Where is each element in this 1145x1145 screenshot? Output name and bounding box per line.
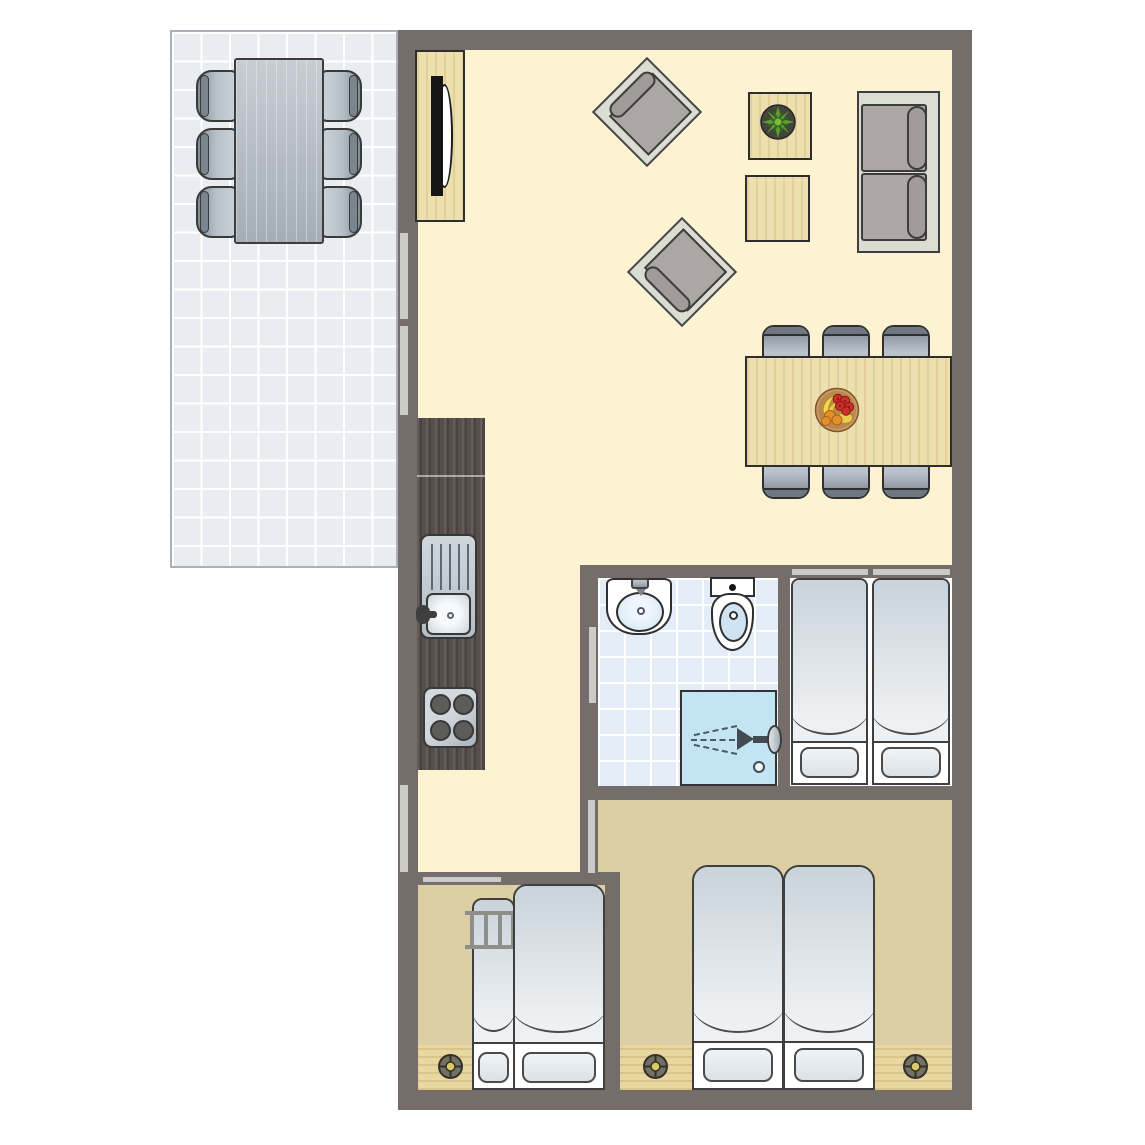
pillow [478,1052,509,1083]
single-bed [791,578,868,785]
toilet-drain [729,611,738,620]
sofa-back-pillow [907,175,927,239]
bunk-bed-lower [472,898,515,1090]
duvet-fold-line [872,709,950,735]
ladder-rung [498,911,502,949]
counter-seam [417,475,485,477]
duvet [474,900,513,1044]
terrace-window [400,326,408,415]
burner-icon [430,720,451,741]
tv [431,76,443,196]
single-bed [783,865,875,1090]
chair-backrest [884,488,928,497]
washbasin-drain [637,607,645,615]
ceiling-vent-icon [437,1053,464,1080]
floor-plan [0,0,1145,1145]
duvet-fold-line [472,1006,515,1032]
chair-backrest [200,191,209,233]
chair-backrest [824,488,868,497]
terrace-dining-table [234,58,324,244]
shower-drain [753,761,765,773]
shower-spray [694,744,737,755]
duvet-fold-line [692,1003,784,1033]
shower [680,690,777,786]
terrace-chair [320,70,362,122]
burner-icon [453,720,474,741]
chair-backrest [764,488,808,497]
pillow [703,1048,773,1082]
ladder-rung [484,911,488,949]
burner-icon [453,694,474,715]
washbasin-faucet-icon [631,578,649,589]
chair-backrest [349,191,358,233]
stove [423,687,478,748]
drainboard-groove [467,544,469,590]
pillow [800,747,859,778]
single-bed [692,865,784,1090]
sofa [857,91,940,253]
kitchen-sink [420,534,477,639]
chair-backrest [824,327,868,336]
headboard [792,569,868,575]
shower-spray [694,725,737,736]
duvet [793,580,866,743]
drainboard-groove [449,544,451,590]
chair-backrest [200,133,209,175]
pillow [794,1048,864,1082]
duvet-fold-line [513,1007,605,1033]
pillow [522,1052,596,1083]
ladder-rung [470,911,474,949]
terrace-chair [320,128,362,180]
bunk-bed-upper [513,884,605,1090]
duvet-fold-line [791,709,868,735]
terrace-chair [196,186,238,238]
duvet-fold-line [783,1003,875,1033]
drainboard-groove [431,544,433,590]
sofa-back-pillow [907,106,927,170]
double-bedroom-door [588,800,595,873]
side-table [745,175,810,242]
fruit-bowl-icon [814,387,860,433]
duvet [694,867,782,1043]
chair-backrest [884,327,928,336]
wall-right [952,30,972,1110]
ceiling-vent-icon [642,1053,669,1080]
single-bed [872,578,950,785]
burner-icon [430,694,451,715]
wall-bathroom-bedroom-divider [778,565,790,800]
washbasin-bowl [616,592,664,632]
chair-backrest [764,327,808,336]
drainboard-groove [440,544,442,590]
shower-head-icon [767,725,782,754]
ceiling-vent-icon [902,1053,929,1080]
faucet-spout [426,611,437,618]
duvet [874,580,948,743]
washbasin [606,578,672,635]
chair-backrest [349,75,358,117]
toilet-bowl [719,602,748,642]
drainboard-groove [458,544,460,590]
chair-backrest [200,75,209,117]
terrace-chair [196,70,238,122]
headboard [873,569,950,575]
wall-bathroom-bottom [580,786,952,800]
chair-backrest [349,133,358,175]
washbasin-spout [636,589,646,596]
wall-top [398,30,972,50]
terrace-chair [196,128,238,180]
wall-bedrooms-divider [605,872,620,1090]
rear-window [400,785,408,872]
duvet [785,867,873,1043]
potted-plant-icon [757,101,799,143]
bathroom-door [589,627,596,703]
terrace-chair [320,186,362,238]
wall-bottom [398,1090,972,1110]
bunk-bedroom-door [423,877,501,882]
flush-button-icon [729,584,736,591]
pillow [881,747,941,778]
terrace-window [400,233,408,319]
shower-nozzle-icon [737,728,754,750]
sink-drain [447,612,454,619]
duvet [515,886,603,1044]
shower-spray [691,739,735,741]
